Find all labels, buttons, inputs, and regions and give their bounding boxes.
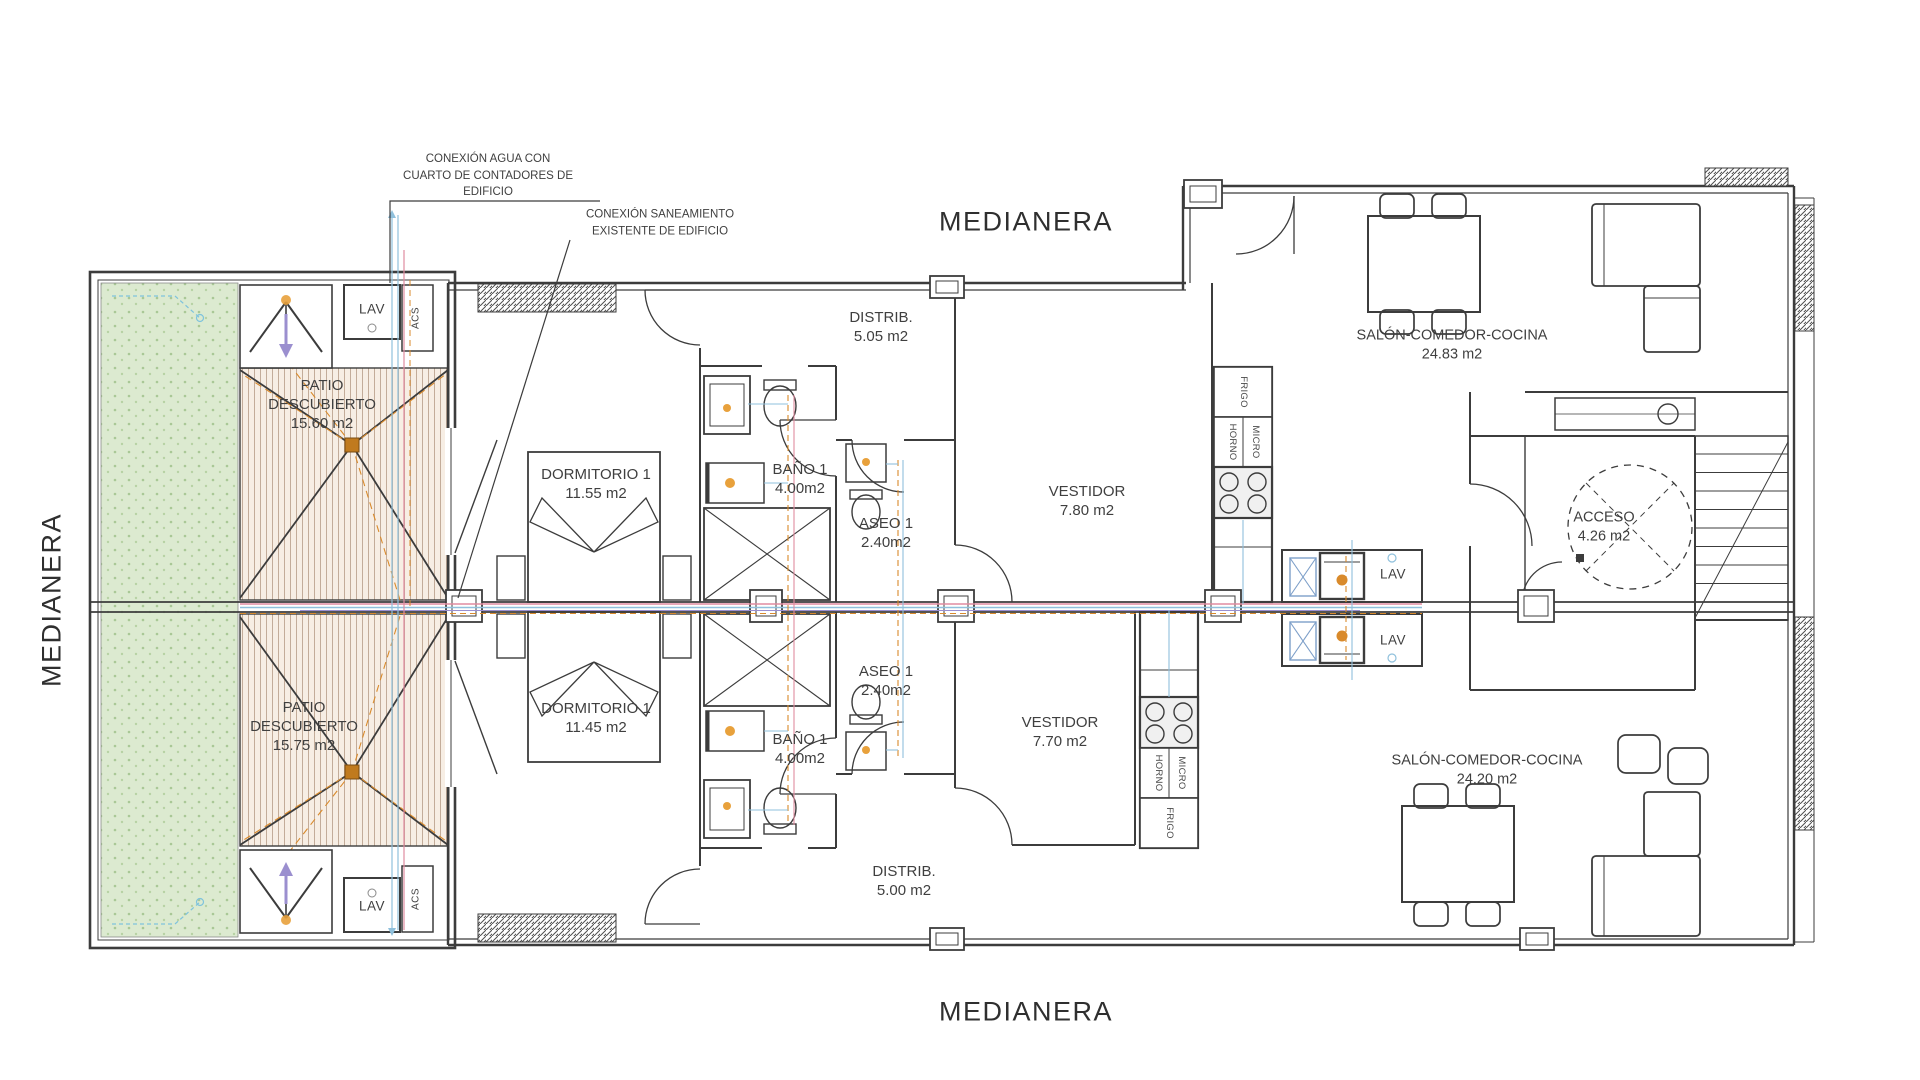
bano-top-label: BAÑO 1 4.00m2 [772, 460, 827, 498]
micro-bottom-label: MICRO [1175, 756, 1187, 789]
medianera-bottom-label: MEDIANERA [939, 995, 1113, 1030]
bano-bottom-label: BAÑO 1 4.00m2 [772, 730, 827, 768]
vestidor-top-label: VESTIDOR 7.80 m2 [1049, 482, 1126, 520]
aseo-bottom-label: ASEO 1 2.40m2 [859, 662, 913, 700]
aseo-top-label: ASEO 1 2.40m2 [859, 514, 913, 552]
window-topright [1705, 168, 1788, 186]
acs-bottom-label: ACS [411, 888, 424, 910]
frigo-bottom-label: FRIGO [1163, 807, 1175, 839]
garden-area [101, 283, 238, 937]
living-furniture [1368, 194, 1708, 936]
vestidor-bottom-label: VESTIDOR 7.70 m2 [1022, 713, 1099, 751]
stairs [1695, 436, 1788, 620]
shower-bottom [240, 850, 332, 933]
shower-top [240, 285, 332, 368]
micro-top-label: MICRO [1249, 425, 1261, 458]
lav-top-left-label: LAV [359, 300, 385, 317]
dormitorio-top-label: DORMITORIO 1 11.55 m2 [541, 465, 651, 503]
patio-top-label: PATIO DESCUBIERTO 15.60 m2 [268, 376, 376, 434]
horno-bottom-label: HORNO [1152, 755, 1164, 792]
horno-top-label: HORNO [1226, 424, 1238, 461]
frigo-top-label: FRIGO [1237, 376, 1249, 408]
window-right-bottom [1795, 617, 1814, 830]
acceso-label: ACCESO 4.26 m2 [1573, 508, 1634, 545]
distrib-bottom-label: DISTRIB. 5.00 m2 [872, 862, 935, 900]
distrib-top-label: DISTRIB. 5.05 m2 [849, 308, 912, 346]
lav-right-bottom-label: LAV [1380, 631, 1406, 648]
salon-top-label: SALÓN-COMEDOR-COCINA 24.83 m2 [1357, 326, 1548, 363]
drain-bottom [345, 765, 359, 779]
water-connection-note: CONEXIÓN AGUA CON CUARTO DE CONTADORES D… [403, 151, 573, 201]
lav-right-top-label: LAV [1380, 565, 1406, 582]
floor-plan: MEDIANERA MEDIANERA MEDIANERA CONEXIÓN A… [0, 0, 1920, 1080]
window-right-top [1795, 205, 1814, 331]
doors [645, 196, 1562, 924]
window-top [478, 284, 616, 312]
acs-top-label: ACS [411, 307, 424, 329]
dormitorio-bottom-label: DORMITORIO 1 11.45 m2 [541, 699, 651, 737]
salon-bottom-label: SALÓN-COMEDOR-COCINA 24.20 m2 [1392, 751, 1583, 788]
sewer-connection-note: CONEXIÓN SANEAMIENTO EXISTENTE DE EDIFIC… [586, 206, 734, 239]
drain-top [345, 438, 359, 452]
medianera-left-label: MEDIANERA [35, 513, 70, 687]
medianera-top-label: MEDIANERA [939, 205, 1113, 240]
lav-bottom-left-label: LAV [359, 897, 385, 914]
patio-bottom-label: PATIO DESCUBIERTO 15.75 m2 [250, 698, 358, 756]
window-bottom [478, 914, 616, 942]
